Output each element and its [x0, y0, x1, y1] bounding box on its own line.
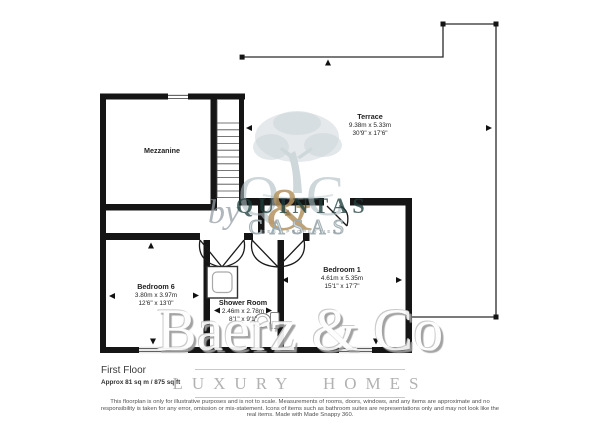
agency-watermark: Baerz & Co [130, 296, 470, 365]
floorplan-page: Mezzanine Terrace 9.38m x 5.33m 30'9" x … [0, 0, 600, 424]
agency-tagline: LUXURY HOMES [170, 374, 430, 394]
floor-area: Approx 81 sq m / 875 sq ft [101, 379, 180, 386]
brand-rule-top [195, 369, 405, 370]
terrace-corner-marker [240, 55, 245, 60]
terrace-door [327, 206, 348, 226]
window-top [168, 93, 188, 100]
disclaimer-text: This floorplan is only for illustrative … [100, 399, 500, 419]
room-name: Mezzanine [107, 147, 217, 155]
arrow-up-icon [325, 60, 331, 66]
room-name: Bedroom 1 [287, 266, 397, 274]
tree-logo-icon [245, 105, 350, 200]
terrace-corner-marker [441, 22, 446, 27]
arrow-right-icon [486, 125, 492, 131]
floor-title: First Floor [101, 365, 146, 376]
room-name: Bedroom 6 [101, 283, 211, 291]
room-dims-metric: 4.61m x 5.35m [287, 275, 397, 283]
arrow-up-icon [148, 243, 154, 249]
shower-tray-icon [207, 267, 238, 299]
room-label-bedroom1: Bedroom 1 4.61m x 5.35m 15'1" x 17'7" [287, 266, 397, 292]
terrace-corner-marker [494, 22, 499, 27]
staircase [217, 100, 239, 198]
brand-rule-bottom [195, 397, 405, 398]
room-dims-imperial: 15'1" x 17'7" [287, 283, 397, 291]
arrow-up-icon [285, 210, 291, 216]
terrace-corner-marker [494, 315, 499, 320]
room-label-mezzanine: Mezzanine [107, 147, 217, 155]
